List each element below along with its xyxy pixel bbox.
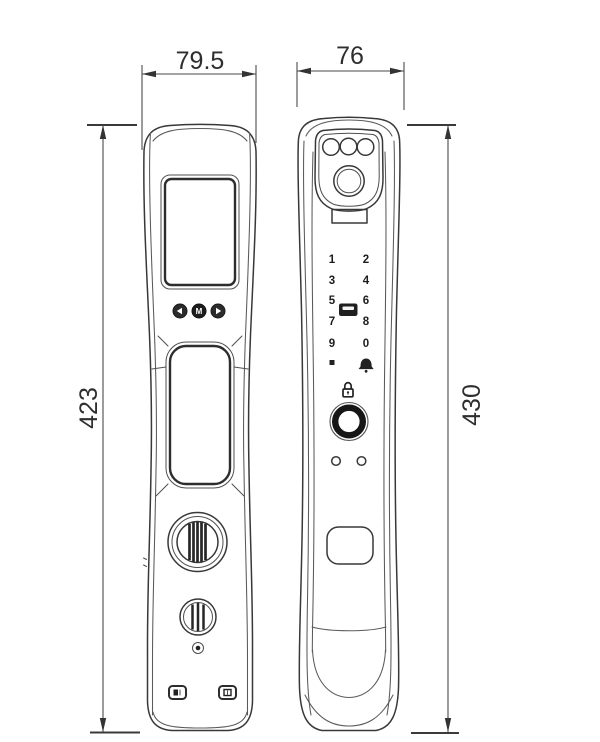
lock-technical-drawing: M — [0, 0, 600, 742]
fingerprint-reader — [330, 403, 368, 441]
nav-buttons: M — [173, 304, 225, 318]
dim-rear-height-arrow-top — [445, 125, 451, 139]
dim-front-width-arrow-right — [242, 71, 256, 77]
camera-panel-inner — [319, 133, 379, 206]
dim-rear-width: 76 — [297, 42, 404, 110]
menu-button-label: M — [196, 307, 203, 316]
dim-front-height-arrow-top — [100, 125, 106, 139]
camera-module — [315, 129, 383, 211]
card-reader-icon — [339, 304, 358, 317]
camera-lens-icon — [334, 166, 364, 196]
dim-rear-height-label: 430 — [458, 384, 486, 426]
front-panel-bottom-contour — [153, 712, 247, 728]
front-panel-left-contour — [150, 133, 157, 715]
rear-panel-right-face-edge — [384, 152, 386, 652]
key-9: 9 — [329, 338, 335, 350]
key-cover — [327, 527, 373, 564]
handle-recess — [170, 346, 230, 484]
key-2: 2 — [363, 254, 369, 266]
camera-led-1-icon — [323, 139, 340, 156]
dim-rear-width-arrow-left — [297, 68, 311, 74]
camera-led-3-icon — [357, 139, 374, 156]
rear-panel-bottom-arc — [305, 695, 393, 726]
front-panel-view: M — [144, 124, 257, 730]
dim-front-width-arrow-left — [142, 71, 156, 77]
dimension-annotations: 79.5 76 423 430 — [75, 42, 486, 733]
dim-front-height-label: 423 — [75, 387, 103, 429]
front-panel-edge-mark — [144, 558, 147, 567]
battery-knob-grip-stripes — [193, 603, 204, 631]
battery-knob — [180, 599, 216, 635]
dim-rear-width-arrow-right — [390, 68, 404, 74]
key-0: 0 — [363, 338, 369, 350]
dim-rear-height-arrow-bottom — [445, 718, 451, 732]
padlock-icon — [343, 383, 353, 397]
rear-panel-face-bottom — [313, 650, 386, 698]
indicator-dot-left — [332, 457, 341, 466]
front-panel-top-contour — [153, 129, 247, 142]
display-screen — [165, 179, 235, 285]
dim-front-width-label: 79.5 — [176, 47, 225, 75]
rear-panel-waist-seam — [312, 627, 386, 631]
bottom-ports — [169, 686, 236, 699]
dim-front-height-arrow-bottom — [100, 718, 106, 732]
dim-front-height: 423 — [75, 125, 140, 733]
thumb-turn-grip-stripes — [190, 522, 206, 562]
rear-panel-left-face-edge — [312, 152, 314, 652]
fingerprint-ring-icon — [335, 408, 363, 436]
key-1: 1 — [329, 254, 336, 266]
screw-icon — [196, 646, 201, 651]
indicator-dot-right — [357, 457, 366, 466]
dim-rear-width-label: 76 — [336, 42, 364, 70]
front-panel-right-contour — [244, 133, 251, 715]
port-left-pin — [174, 690, 179, 696]
screen-outer-frame — [161, 175, 239, 289]
key-6: 6 — [363, 295, 369, 307]
star-key-icon — [330, 360, 335, 365]
keypad: 1 2 3 4 5 6 7 8 9 0 — [329, 254, 374, 373]
camera-lens-inner — [337, 169, 361, 193]
thumb-turn-knob — [168, 513, 227, 572]
rear-panel-left-contour — [304, 141, 311, 715]
key-8: 8 — [363, 316, 370, 328]
bell-key-icon — [359, 359, 374, 373]
camera-led-2-icon — [340, 138, 357, 155]
rear-panel-view: 1 2 3 4 5 6 7 8 9 0 — [298, 117, 400, 730]
handle-recess-outer — [166, 342, 234, 488]
key-5: 5 — [329, 295, 336, 307]
key-3: 3 — [329, 275, 335, 287]
key-7: 7 — [329, 316, 335, 328]
dim-rear-height: 430 — [407, 125, 486, 733]
key-4: 4 — [363, 275, 370, 287]
rear-panel-right-contour — [387, 141, 394, 715]
